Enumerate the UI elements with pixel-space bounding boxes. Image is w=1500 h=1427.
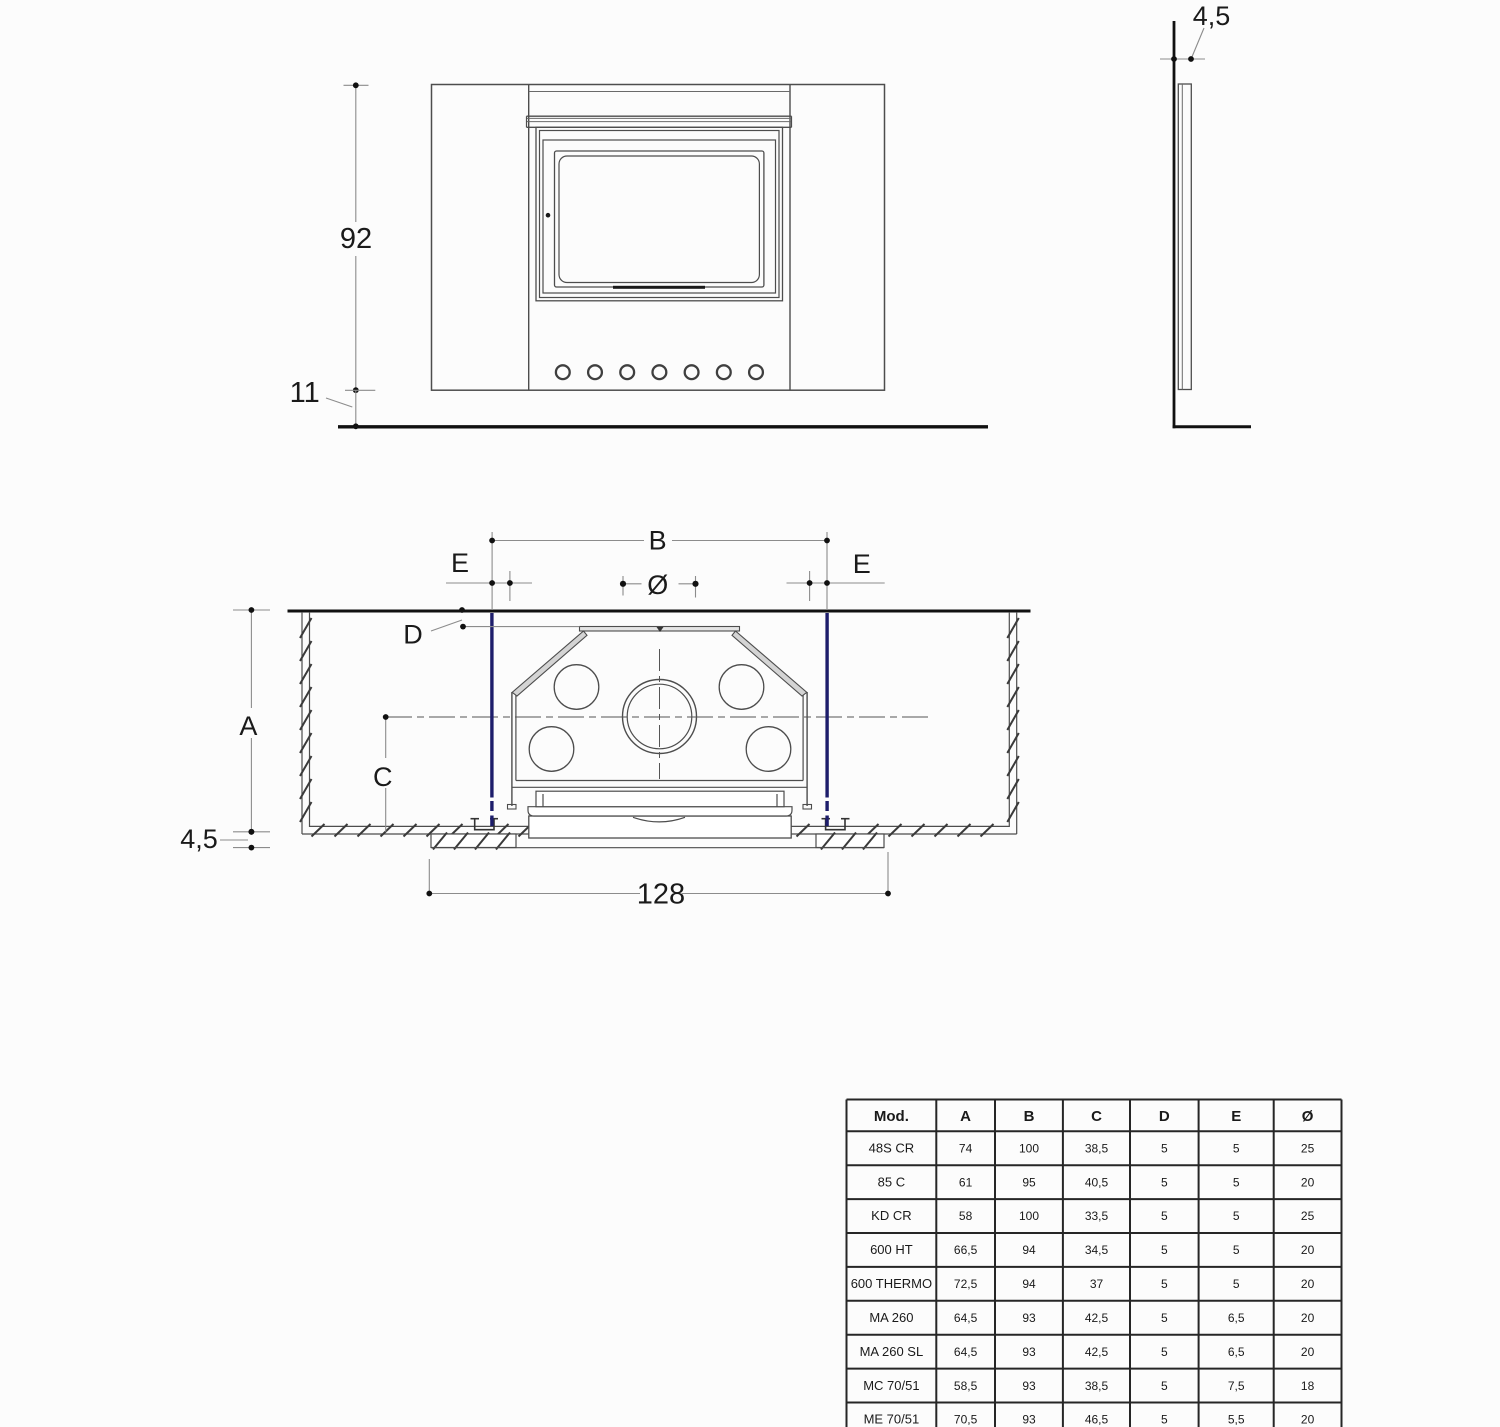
svg-text:70,5: 70,5 — [954, 1413, 978, 1427]
svg-text:38,5: 38,5 — [1085, 1142, 1109, 1156]
svg-text:48S CR: 48S CR — [869, 1141, 915, 1156]
svg-text:11: 11 — [290, 377, 320, 409]
svg-text:20: 20 — [1301, 1243, 1315, 1257]
svg-text:20: 20 — [1301, 1413, 1315, 1427]
svg-text:64,5: 64,5 — [954, 1345, 978, 1359]
svg-text:6,5: 6,5 — [1228, 1311, 1245, 1325]
svg-text:64,5: 64,5 — [954, 1311, 978, 1325]
svg-text:72,5: 72,5 — [954, 1277, 978, 1291]
svg-text:37: 37 — [1090, 1277, 1104, 1291]
svg-text:5: 5 — [1161, 1345, 1168, 1359]
svg-text:KD CR: KD CR — [871, 1208, 911, 1223]
svg-text:128: 128 — [637, 879, 685, 911]
svg-text:42,5: 42,5 — [1085, 1311, 1109, 1325]
svg-text:42,5: 42,5 — [1085, 1345, 1109, 1359]
svg-text:600 THERMO: 600 THERMO — [851, 1276, 932, 1291]
svg-text:93: 93 — [1022, 1379, 1036, 1393]
svg-text:5: 5 — [1161, 1277, 1168, 1291]
svg-text:93: 93 — [1022, 1345, 1036, 1359]
svg-text:ME 70/51: ME 70/51 — [864, 1412, 920, 1427]
svg-text:4,5: 4,5 — [1193, 1, 1231, 31]
svg-text:E: E — [451, 548, 469, 578]
svg-text:58: 58 — [959, 1209, 973, 1223]
svg-text:5: 5 — [1233, 1175, 1240, 1189]
svg-text:93: 93 — [1022, 1413, 1036, 1427]
svg-text:94: 94 — [1022, 1277, 1036, 1291]
svg-text:33,5: 33,5 — [1085, 1209, 1109, 1223]
svg-text:94: 94 — [1022, 1243, 1036, 1257]
svg-text:600 HT: 600 HT — [870, 1242, 913, 1257]
svg-text:20: 20 — [1301, 1175, 1315, 1189]
svg-text:A: A — [239, 711, 257, 741]
svg-text:D: D — [1159, 1108, 1170, 1125]
svg-text:5: 5 — [1161, 1311, 1168, 1325]
svg-text:61: 61 — [959, 1175, 973, 1189]
svg-text:20: 20 — [1301, 1277, 1315, 1291]
svg-text:5: 5 — [1161, 1209, 1168, 1223]
svg-text:5: 5 — [1233, 1243, 1240, 1257]
svg-text:A: A — [960, 1108, 971, 1125]
svg-text:MA 260 SL: MA 260 SL — [860, 1344, 924, 1359]
svg-text:Ø: Ø — [647, 570, 668, 600]
svg-text:92: 92 — [340, 223, 372, 255]
svg-text:4,5: 4,5 — [180, 824, 218, 854]
svg-text:34,5: 34,5 — [1085, 1243, 1109, 1257]
svg-text:C: C — [373, 762, 393, 792]
svg-text:25: 25 — [1301, 1142, 1315, 1156]
svg-text:5: 5 — [1161, 1413, 1168, 1427]
svg-text:20: 20 — [1301, 1345, 1315, 1359]
svg-text:100: 100 — [1019, 1142, 1039, 1156]
svg-text:MC 70/51: MC 70/51 — [863, 1378, 919, 1393]
svg-text:18: 18 — [1301, 1379, 1315, 1393]
svg-text:Ø: Ø — [1302, 1108, 1314, 1125]
svg-text:5: 5 — [1161, 1175, 1168, 1189]
svg-text:MA 260: MA 260 — [869, 1310, 913, 1325]
svg-text:5: 5 — [1161, 1243, 1168, 1257]
svg-text:D: D — [403, 620, 423, 650]
svg-text:25: 25 — [1301, 1209, 1315, 1223]
svg-text:E: E — [853, 549, 871, 579]
svg-text:E: E — [1231, 1108, 1241, 1125]
svg-text:Mod.: Mod. — [874, 1108, 909, 1125]
svg-text:B: B — [1024, 1108, 1035, 1125]
svg-text:5: 5 — [1233, 1277, 1240, 1291]
svg-text:95: 95 — [1022, 1175, 1036, 1189]
svg-text:7,5: 7,5 — [1228, 1379, 1245, 1393]
svg-text:100: 100 — [1019, 1209, 1039, 1223]
svg-text:46,5: 46,5 — [1085, 1413, 1109, 1427]
svg-text:5: 5 — [1161, 1379, 1168, 1393]
svg-text:5: 5 — [1233, 1142, 1240, 1156]
svg-text:5: 5 — [1161, 1142, 1168, 1156]
svg-text:38,5: 38,5 — [1085, 1379, 1109, 1393]
svg-text:40,5: 40,5 — [1085, 1175, 1109, 1189]
svg-text:66,5: 66,5 — [954, 1243, 978, 1257]
svg-text:6,5: 6,5 — [1228, 1345, 1245, 1359]
svg-text:5: 5 — [1233, 1209, 1240, 1223]
svg-text:20: 20 — [1301, 1311, 1315, 1325]
svg-text:B: B — [649, 526, 667, 556]
svg-text:58,5: 58,5 — [954, 1379, 978, 1393]
svg-text:5,5: 5,5 — [1228, 1413, 1245, 1427]
svg-text:85 C: 85 C — [878, 1174, 905, 1189]
svg-text:93: 93 — [1022, 1311, 1036, 1325]
svg-text:74: 74 — [959, 1142, 973, 1156]
svg-text:C: C — [1091, 1108, 1102, 1125]
